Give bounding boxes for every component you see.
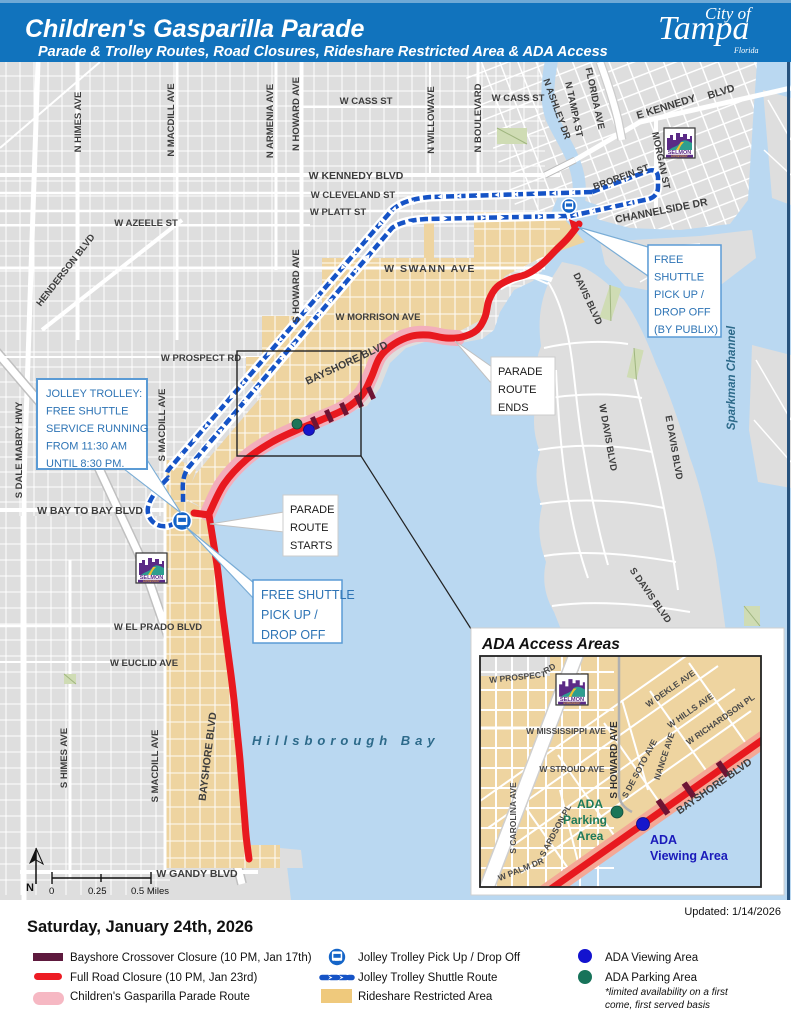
svg-text:FREE SHUTTLE: FREE SHUTTLE	[46, 406, 129, 418]
svg-text:W GANDY BLVD: W GANDY BLVD	[156, 868, 238, 880]
svg-text:FROM 11:30 AM: FROM 11:30 AM	[46, 441, 127, 453]
svg-text:N MACDILL AVE: N MACDILL AVE	[166, 83, 177, 156]
svg-text:Parking: Parking	[563, 813, 607, 827]
svg-text:W CASS ST: W CASS ST	[492, 93, 545, 104]
svg-text:W CLEVELAND ST: W CLEVELAND ST	[311, 190, 396, 201]
svg-text:ADA: ADA	[650, 833, 677, 847]
svg-text:W EUCLID AVE: W EUCLID AVE	[110, 658, 178, 669]
svg-text:UNTIL 8:30 PM.: UNTIL 8:30 PM.	[46, 458, 124, 470]
svg-text:EXPRESSWAY: EXPRESSWAY	[671, 155, 688, 158]
svg-text:Jolley Trolley Shuttle Route: Jolley Trolley Shuttle Route	[358, 972, 497, 984]
svg-text:Area: Area	[577, 829, 604, 843]
svg-text:FREE SHUTTLE: FREE SHUTTLE	[261, 588, 355, 602]
svg-text:N HIMES AVE: N HIMES AVE	[73, 92, 84, 153]
svg-text:W PROSPECT RD: W PROSPECT RD	[161, 353, 241, 364]
svg-text:Full Road Closure (10 PM, Jan: Full Road Closure (10 PM, Jan 23rd)	[70, 972, 257, 984]
svg-text:STARTS: STARTS	[290, 540, 332, 552]
svg-text:Bayshore Crossover Closure (10: Bayshore Crossover Closure (10 PM, Jan 1…	[70, 952, 312, 964]
svg-text:ROUTE: ROUTE	[498, 384, 537, 396]
svg-text:PICK UP /: PICK UP /	[261, 608, 318, 622]
svg-text:S HOWARD AVE: S HOWARD AVE	[291, 249, 302, 322]
svg-text:PARADE: PARADE	[290, 504, 334, 516]
svg-text:SERVICE RUNNING: SERVICE RUNNING	[46, 423, 148, 435]
svg-text:Sparkman Channel: Sparkman Channel	[726, 325, 738, 430]
svg-text:SHUTTLE: SHUTTLE	[654, 272, 704, 284]
svg-text:W STROUD AVE: W STROUD AVE	[539, 764, 604, 774]
svg-text:W SWANN AVE: W SWANN AVE	[384, 263, 476, 275]
svg-text:EXPRESSWAY: EXPRESSWAY	[563, 702, 580, 705]
svg-text:S MACDILL AVE: S MACDILL AVE	[157, 389, 168, 462]
svg-text:ADA: ADA	[577, 797, 603, 811]
svg-text:S HIMES AVE: S HIMES AVE	[59, 728, 70, 788]
svg-text:N WILLOWAVE: N WILLOWAVE	[426, 86, 437, 153]
svg-text:PARADE: PARADE	[498, 366, 542, 378]
svg-text:(BY PUBLIX): (BY PUBLIX)	[654, 324, 718, 336]
svg-text:ROUTE: ROUTE	[290, 522, 329, 534]
svg-text:W EL PRADO BLVD: W EL PRADO BLVD	[114, 622, 202, 633]
svg-text:Jolley Trolley Pick Up / Drop: Jolley Trolley Pick Up / Drop Off	[358, 952, 521, 964]
svg-text:S HOWARD AVE: S HOWARD AVE	[609, 721, 620, 799]
svg-text:Rideshare Restricted Area: Rideshare Restricted Area	[358, 991, 493, 1003]
svg-text:Hillsborough Bay: Hillsborough Bay	[252, 733, 440, 748]
svg-text:N HOWARD AVE: N HOWARD AVE	[291, 77, 302, 151]
svg-text:JOLLEY TROLLEY:: JOLLEY TROLLEY:	[46, 388, 142, 400]
svg-text:W AZEELE ST: W AZEELE ST	[114, 218, 178, 229]
svg-text:0.25: 0.25	[88, 886, 107, 897]
svg-text:S MACDILL AVE: S MACDILL AVE	[150, 730, 161, 803]
svg-text:EXPRESSWAY: EXPRESSWAY	[143, 580, 160, 583]
svg-text:ADA Parking Area: ADA Parking Area	[605, 972, 698, 984]
svg-text:N: N	[26, 882, 34, 894]
svg-text:W MISSISSIPPI AVE: W MISSISSIPPI AVE	[526, 726, 606, 736]
svg-text:ADA Viewing Area: ADA Viewing Area	[605, 952, 699, 964]
svg-text:Children's Gasparilla Parade R: Children's Gasparilla Parade Route	[70, 991, 250, 1003]
svg-text:ENDS: ENDS	[498, 402, 529, 414]
svg-text:come, first served basis: come, first served basis	[605, 1000, 710, 1011]
svg-text:N ARMENIA AVE: N ARMENIA AVE	[265, 84, 276, 158]
svg-text:S CAROLINA AVE: S CAROLINA AVE	[508, 782, 518, 854]
svg-text:PICK UP /: PICK UP /	[654, 289, 705, 301]
svg-text:*limited availability on a fir: *limited availability on a first	[605, 987, 729, 998]
svg-text:Viewing Area: Viewing Area	[650, 849, 729, 863]
svg-text:W CASS ST: W CASS ST	[340, 96, 393, 107]
svg-text:W BAY TO BAY BLVD: W BAY TO BAY BLVD	[37, 505, 143, 517]
svg-text:DROP OFF: DROP OFF	[654, 307, 711, 319]
svg-text:0.5 Miles: 0.5 Miles	[131, 886, 169, 897]
svg-text:S DALE MABRY HWY: S DALE MABRY HWY	[14, 401, 25, 498]
svg-text:DROP OFF: DROP OFF	[261, 628, 326, 642]
svg-text:N BOULEVARD: N BOULEVARD	[473, 83, 484, 152]
svg-text:W KENNEDY BLVD: W KENNEDY BLVD	[309, 170, 404, 182]
svg-text:0: 0	[49, 886, 54, 897]
svg-text:W PLATT ST: W PLATT ST	[310, 207, 366, 218]
svg-text:FREE: FREE	[654, 254, 683, 266]
svg-text:ADA Access Areas: ADA Access Areas	[481, 636, 620, 653]
svg-text:W MORRISON AVE: W MORRISON AVE	[336, 312, 421, 323]
